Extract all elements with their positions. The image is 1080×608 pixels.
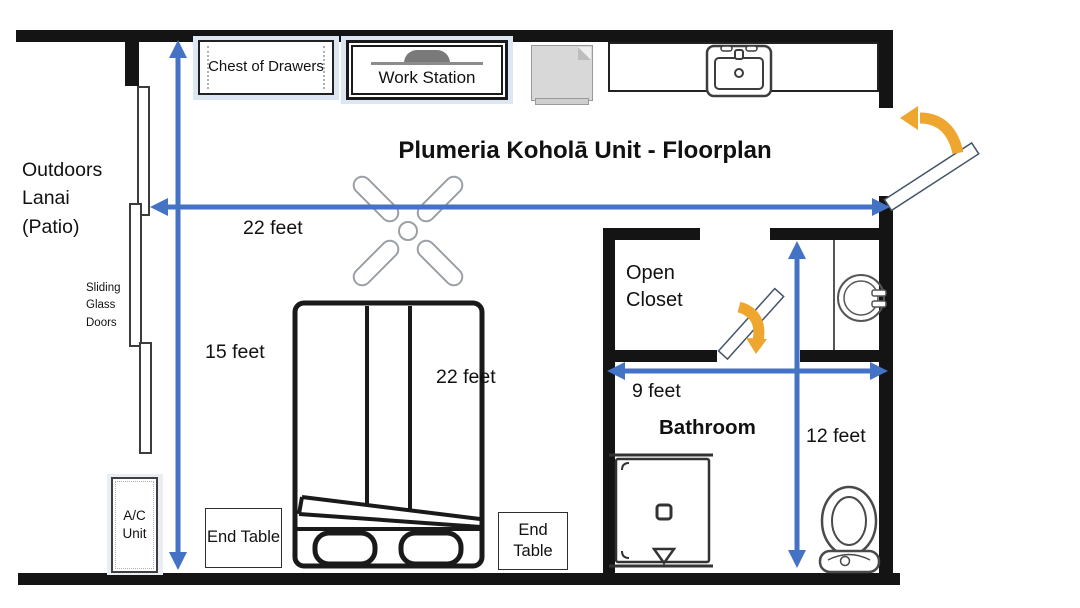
- wall-right-upper: [879, 30, 893, 108]
- counter: [608, 42, 879, 92]
- sliding-glass-doors-label: Sliding Glass Doors: [86, 280, 138, 332]
- dimension-arrow-bathroom-width: [607, 362, 888, 380]
- bathroom-label: Bathroom: [659, 416, 756, 440]
- shower-arrow-icon: [654, 549, 674, 563]
- workstation-label: Work Station: [353, 68, 501, 88]
- toilet-icon: [820, 487, 879, 572]
- end-table-label: End Table: [499, 520, 567, 563]
- appliance-lip-icon: [535, 98, 589, 105]
- washer-compartment-divider: [833, 240, 835, 350]
- shower-drain-icon: [657, 505, 671, 519]
- chest-of-drawers: Chest of Drawers: [198, 40, 334, 95]
- pillow-icon: [315, 533, 375, 564]
- outdoors-lanai-label: Outdoors Lanai (Patio): [22, 156, 122, 241]
- ac-unit-label: A/C Unit: [113, 507, 156, 542]
- measurement-bed-wall: 22 feet: [436, 366, 496, 389]
- wall-left-upper: [125, 30, 139, 86]
- entry-door: [884, 143, 978, 211]
- wall-right-lower: [879, 196, 893, 585]
- page-title: Plumeria Koholā Unit - Floorplan: [355, 137, 815, 165]
- sliding-door-panel: [137, 86, 150, 216]
- wall-closet-top-left: [603, 228, 700, 240]
- dimension-arrow-room-width: [150, 198, 890, 216]
- pillow-icon: [401, 533, 461, 564]
- ac-unit: A/C Unit: [111, 477, 158, 573]
- dimension-arrow-bathroom-depth: [788, 241, 806, 568]
- wall-closet-bottom-left: [603, 350, 717, 362]
- entry-door-swing-arrow-icon: [900, 106, 958, 153]
- bathroom-door: [719, 289, 784, 359]
- sliding-door-panel: [139, 342, 152, 454]
- appliance-fold-icon: [578, 47, 591, 60]
- measurement-bathroom-width: 9 feet: [632, 380, 681, 403]
- end-table-right: End Table: [498, 512, 568, 570]
- measurement-room-width: 22 feet: [243, 217, 303, 240]
- end-table-label: End Table: [207, 527, 280, 548]
- wall-closet-top-right: [770, 228, 879, 240]
- floorplan-canvas: Chest of Drawers Work Station A/C Unit E…: [0, 0, 1080, 608]
- shower-icon: [609, 455, 713, 566]
- dimension-arrow-room-depth: [169, 40, 187, 570]
- end-table-left: End Table: [205, 508, 282, 568]
- drawer-dots-icon: [207, 46, 209, 89]
- measurement-room-depth: 15 feet: [205, 341, 265, 364]
- appliance-icon: [531, 45, 593, 101]
- wall-closet-bottom-right: [800, 350, 879, 362]
- bed-icon: [295, 303, 482, 566]
- ceiling-fan-icon: [350, 173, 466, 289]
- wall-closet-left: [603, 228, 615, 585]
- laptop-base-icon: [371, 62, 483, 65]
- open-closet-label: Open Closet: [626, 260, 708, 314]
- chest-of-drawers-label: Chest of Drawers: [208, 58, 324, 77]
- measurement-bathroom-depth: 12 feet: [806, 425, 866, 448]
- workstation: Work Station: [346, 40, 508, 100]
- drawer-dots-icon: [323, 46, 325, 89]
- bathroom-door-swing-arrow-icon: [739, 307, 767, 354]
- workstation-frame: Work Station: [351, 45, 503, 95]
